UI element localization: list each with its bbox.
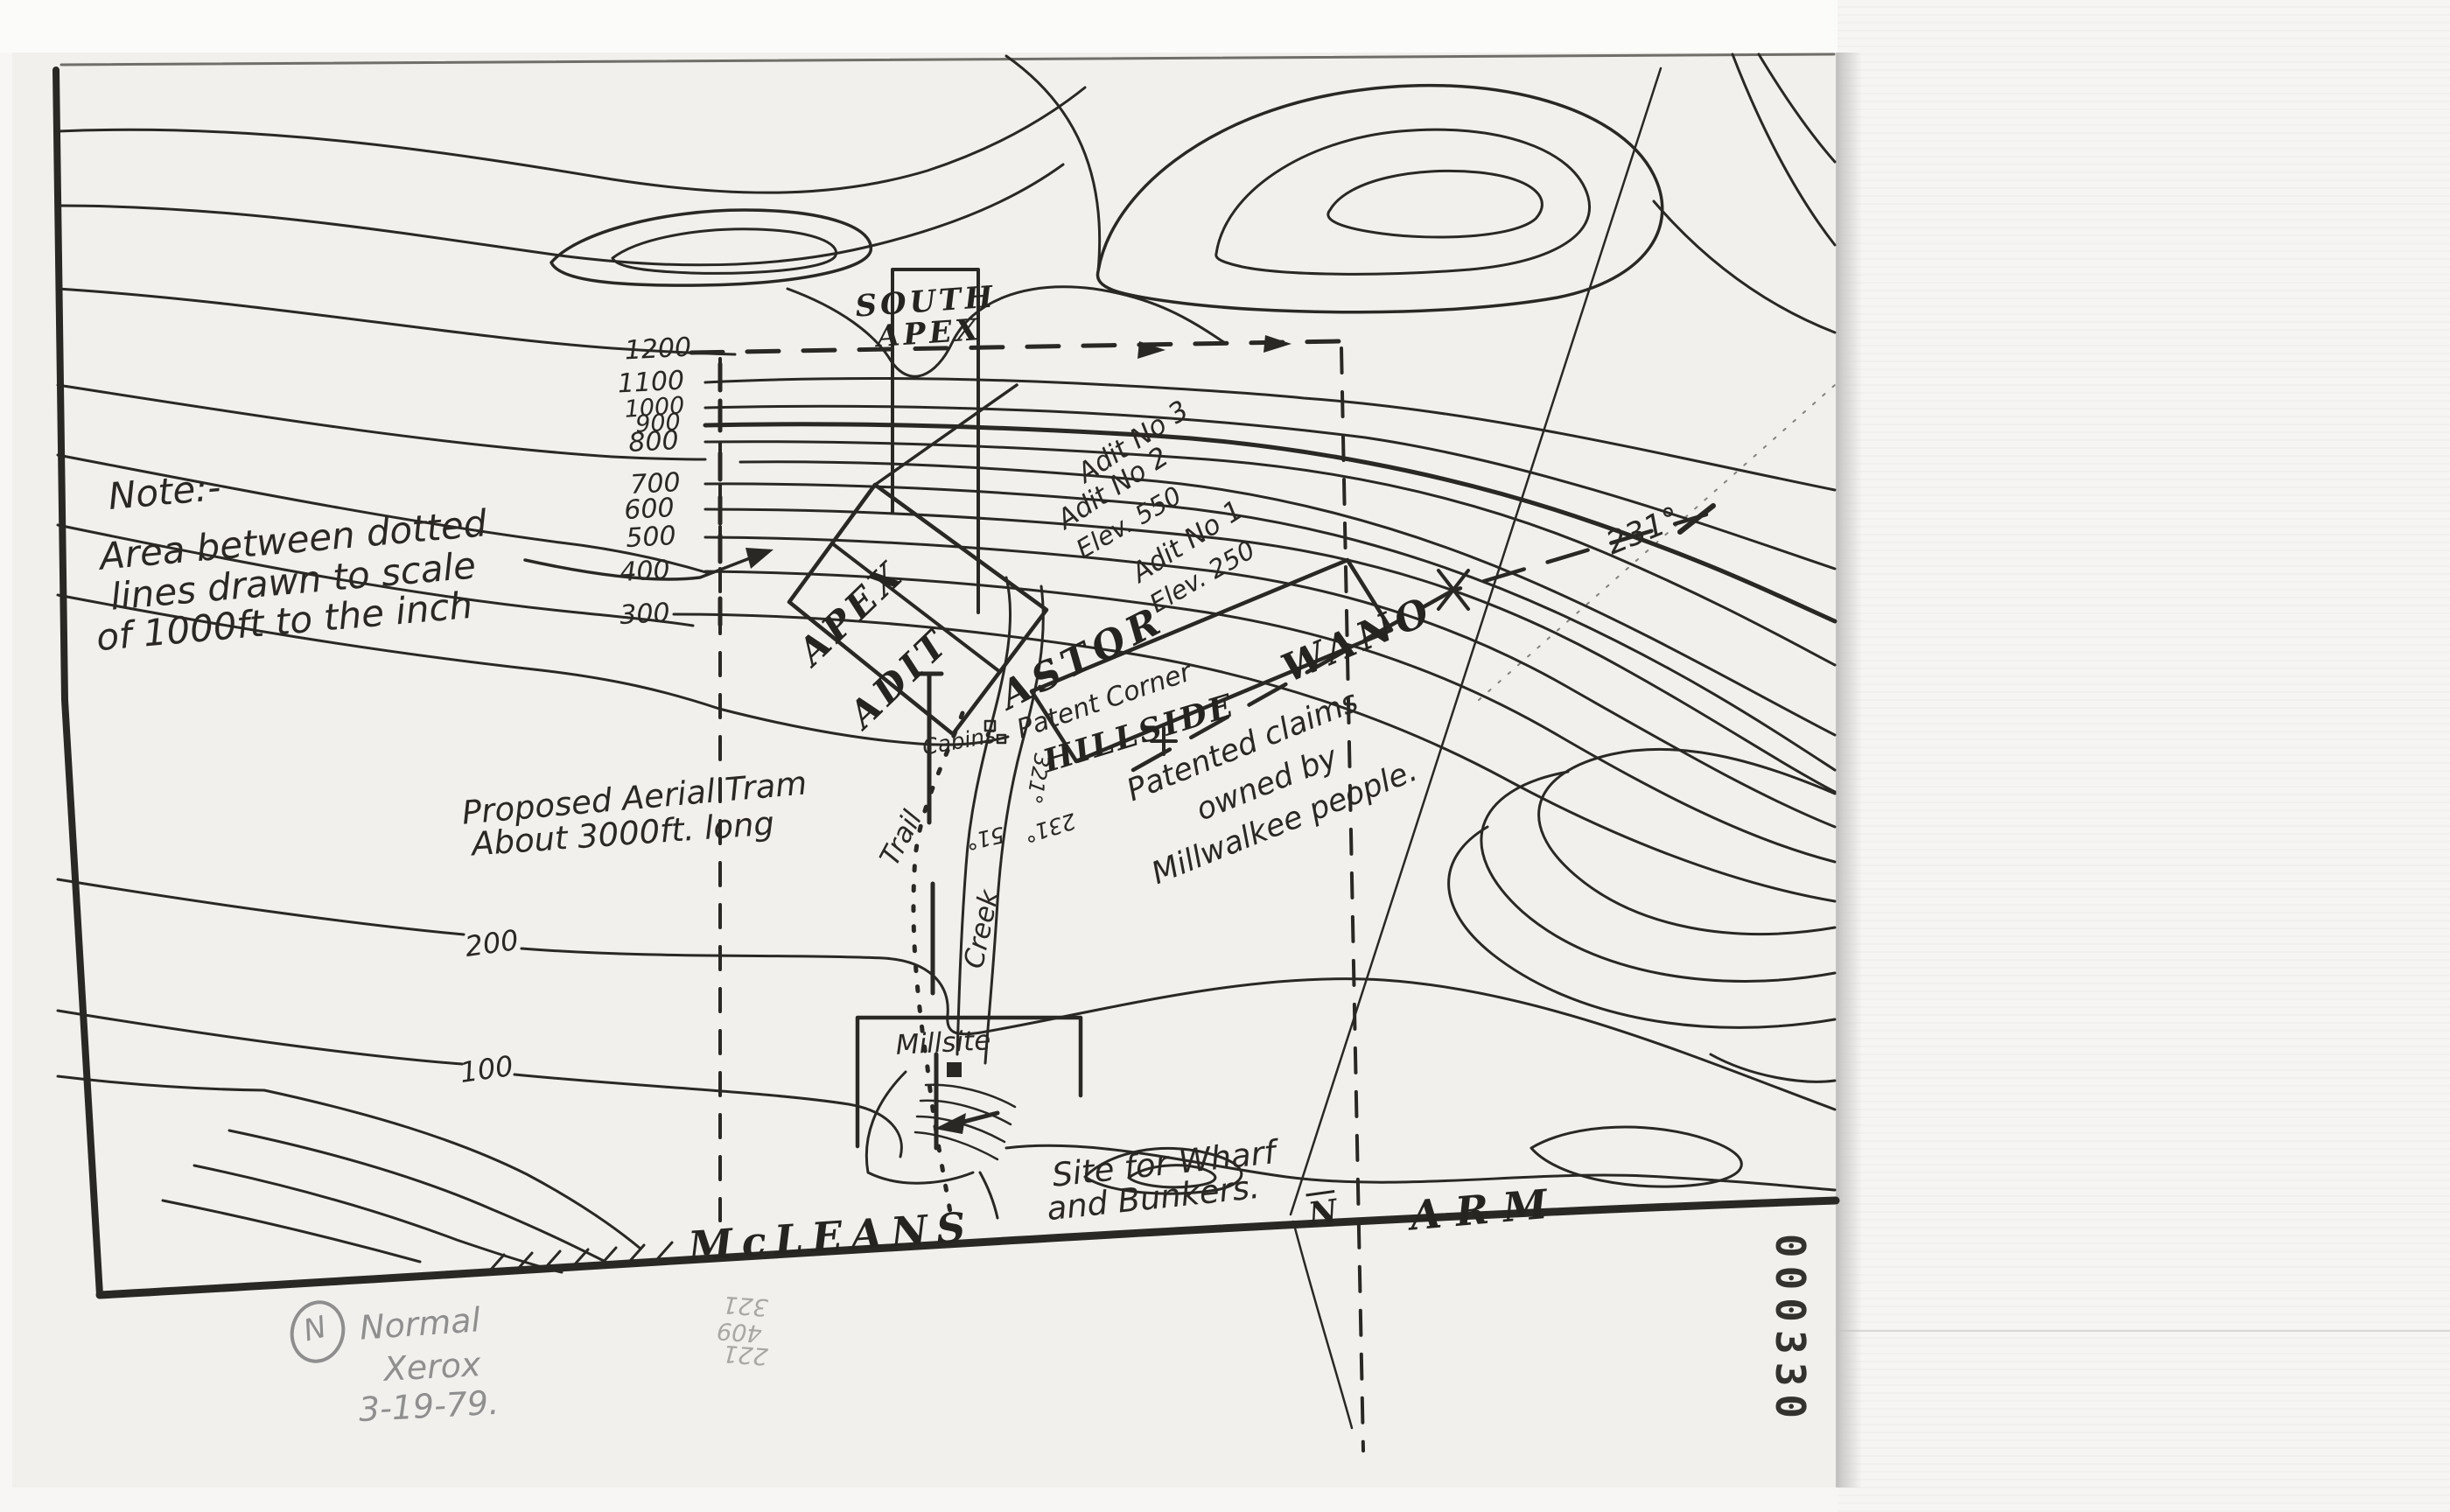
elevation-800: 800 xyxy=(627,425,679,458)
claim-south-apex-line2: APEX xyxy=(876,312,983,354)
pencil-note-date: 3-19-79. xyxy=(358,1383,500,1429)
pencil-figure-3: 221 xyxy=(722,1340,769,1370)
millsite-label: Millsite xyxy=(895,1025,991,1061)
elevation-1200: 1200 xyxy=(624,332,692,367)
north-mark: N xyxy=(1306,1193,1340,1233)
pencil-figure-1: 321 xyxy=(722,1291,769,1321)
elevation-300: 300 xyxy=(619,598,670,631)
pencil-note-xerox: Xerox xyxy=(383,1345,482,1389)
document-number-stamp: 000330 xyxy=(1767,1234,1814,1426)
elevation-400: 400 xyxy=(619,555,670,588)
scanned-map-page: Note:- Area between dotted lines drawn t… xyxy=(0,0,2450,1512)
elevation-500: 500 xyxy=(625,521,676,554)
